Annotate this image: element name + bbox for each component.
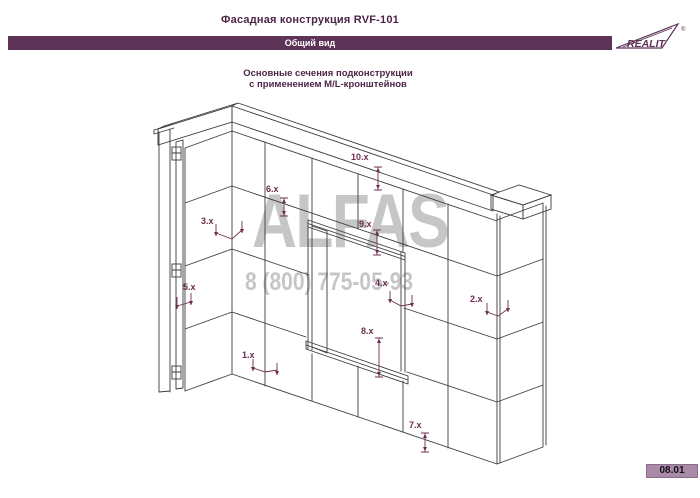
bracket-clips xyxy=(172,147,181,379)
left-return-panels xyxy=(185,131,232,391)
section-label-2x: 2.x xyxy=(470,294,483,304)
facade-isometric-drawing xyxy=(0,0,700,498)
section-marker-arrows xyxy=(175,168,510,452)
parapet-cap xyxy=(158,103,499,211)
page-root: ALFAS 8 (800) 775-05-93 Фасадная констру… xyxy=(0,0,700,498)
window-opening xyxy=(306,220,408,384)
section-label-7x: 7.x xyxy=(409,420,422,430)
right-return-panels xyxy=(497,203,546,464)
left-anchor-profile xyxy=(154,124,174,392)
left-vertical-profile xyxy=(176,140,183,389)
section-label-8x: 8.x xyxy=(361,326,374,336)
section-label-4x: 4.x xyxy=(375,278,388,288)
section-label-10x: 10.x xyxy=(351,152,369,162)
section-label-3x: 3.x xyxy=(201,216,214,226)
section-label-5x: 5.x xyxy=(183,282,196,292)
section-label-1x: 1.x xyxy=(242,350,255,360)
section-label-9x: 9.x xyxy=(359,219,372,229)
page-number-badge: 08.01 xyxy=(646,464,698,478)
section-markers xyxy=(177,167,508,452)
section-label-6x: 6.x xyxy=(266,184,279,194)
right-end-cap xyxy=(491,185,551,219)
